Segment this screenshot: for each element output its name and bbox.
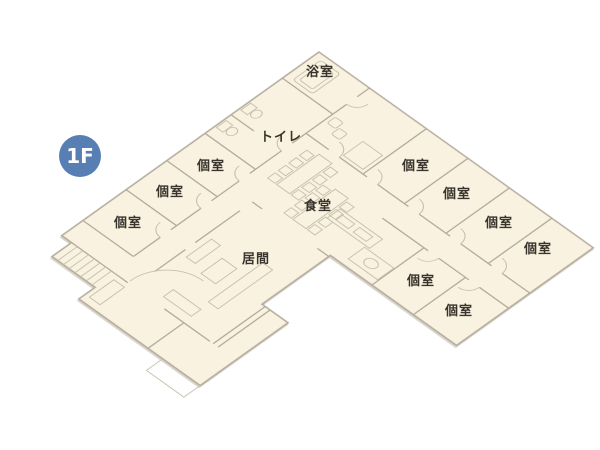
room-label-private-5: 個室 [442,186,471,202]
room-label-private-3: 個室 [113,215,142,231]
room-label-dining: 食堂 [304,198,332,214]
room-label-private-2: 個室 [155,184,184,200]
room-label-private-8: 個室 [406,273,435,289]
floor-badge-label: 1F [66,144,94,168]
building-outline [26,52,593,450]
room-label-private-6: 個室 [484,215,513,231]
room-label-private-7: 個室 [523,241,552,257]
room-label-private-9: 個室 [444,303,473,319]
room-label-private-4: 個室 [401,158,430,174]
floor-plan-page: 浴室 トイレ 個室 個室 個室 個室 個室 個室 個室 個室 個室 食堂 居間 … [0,0,600,450]
room-label-living: 居間 [242,252,270,267]
room-label-toilet: トイレ [260,130,302,145]
floor-plan-canvas: 浴室 トイレ 個室 個室 個室 個室 個室 個室 個室 個室 個室 食堂 居間 … [0,0,600,450]
room-label-bathroom: 浴室 [306,64,334,80]
room-label-private-1: 個室 [196,158,225,174]
floor-badge: 1F [59,135,101,177]
